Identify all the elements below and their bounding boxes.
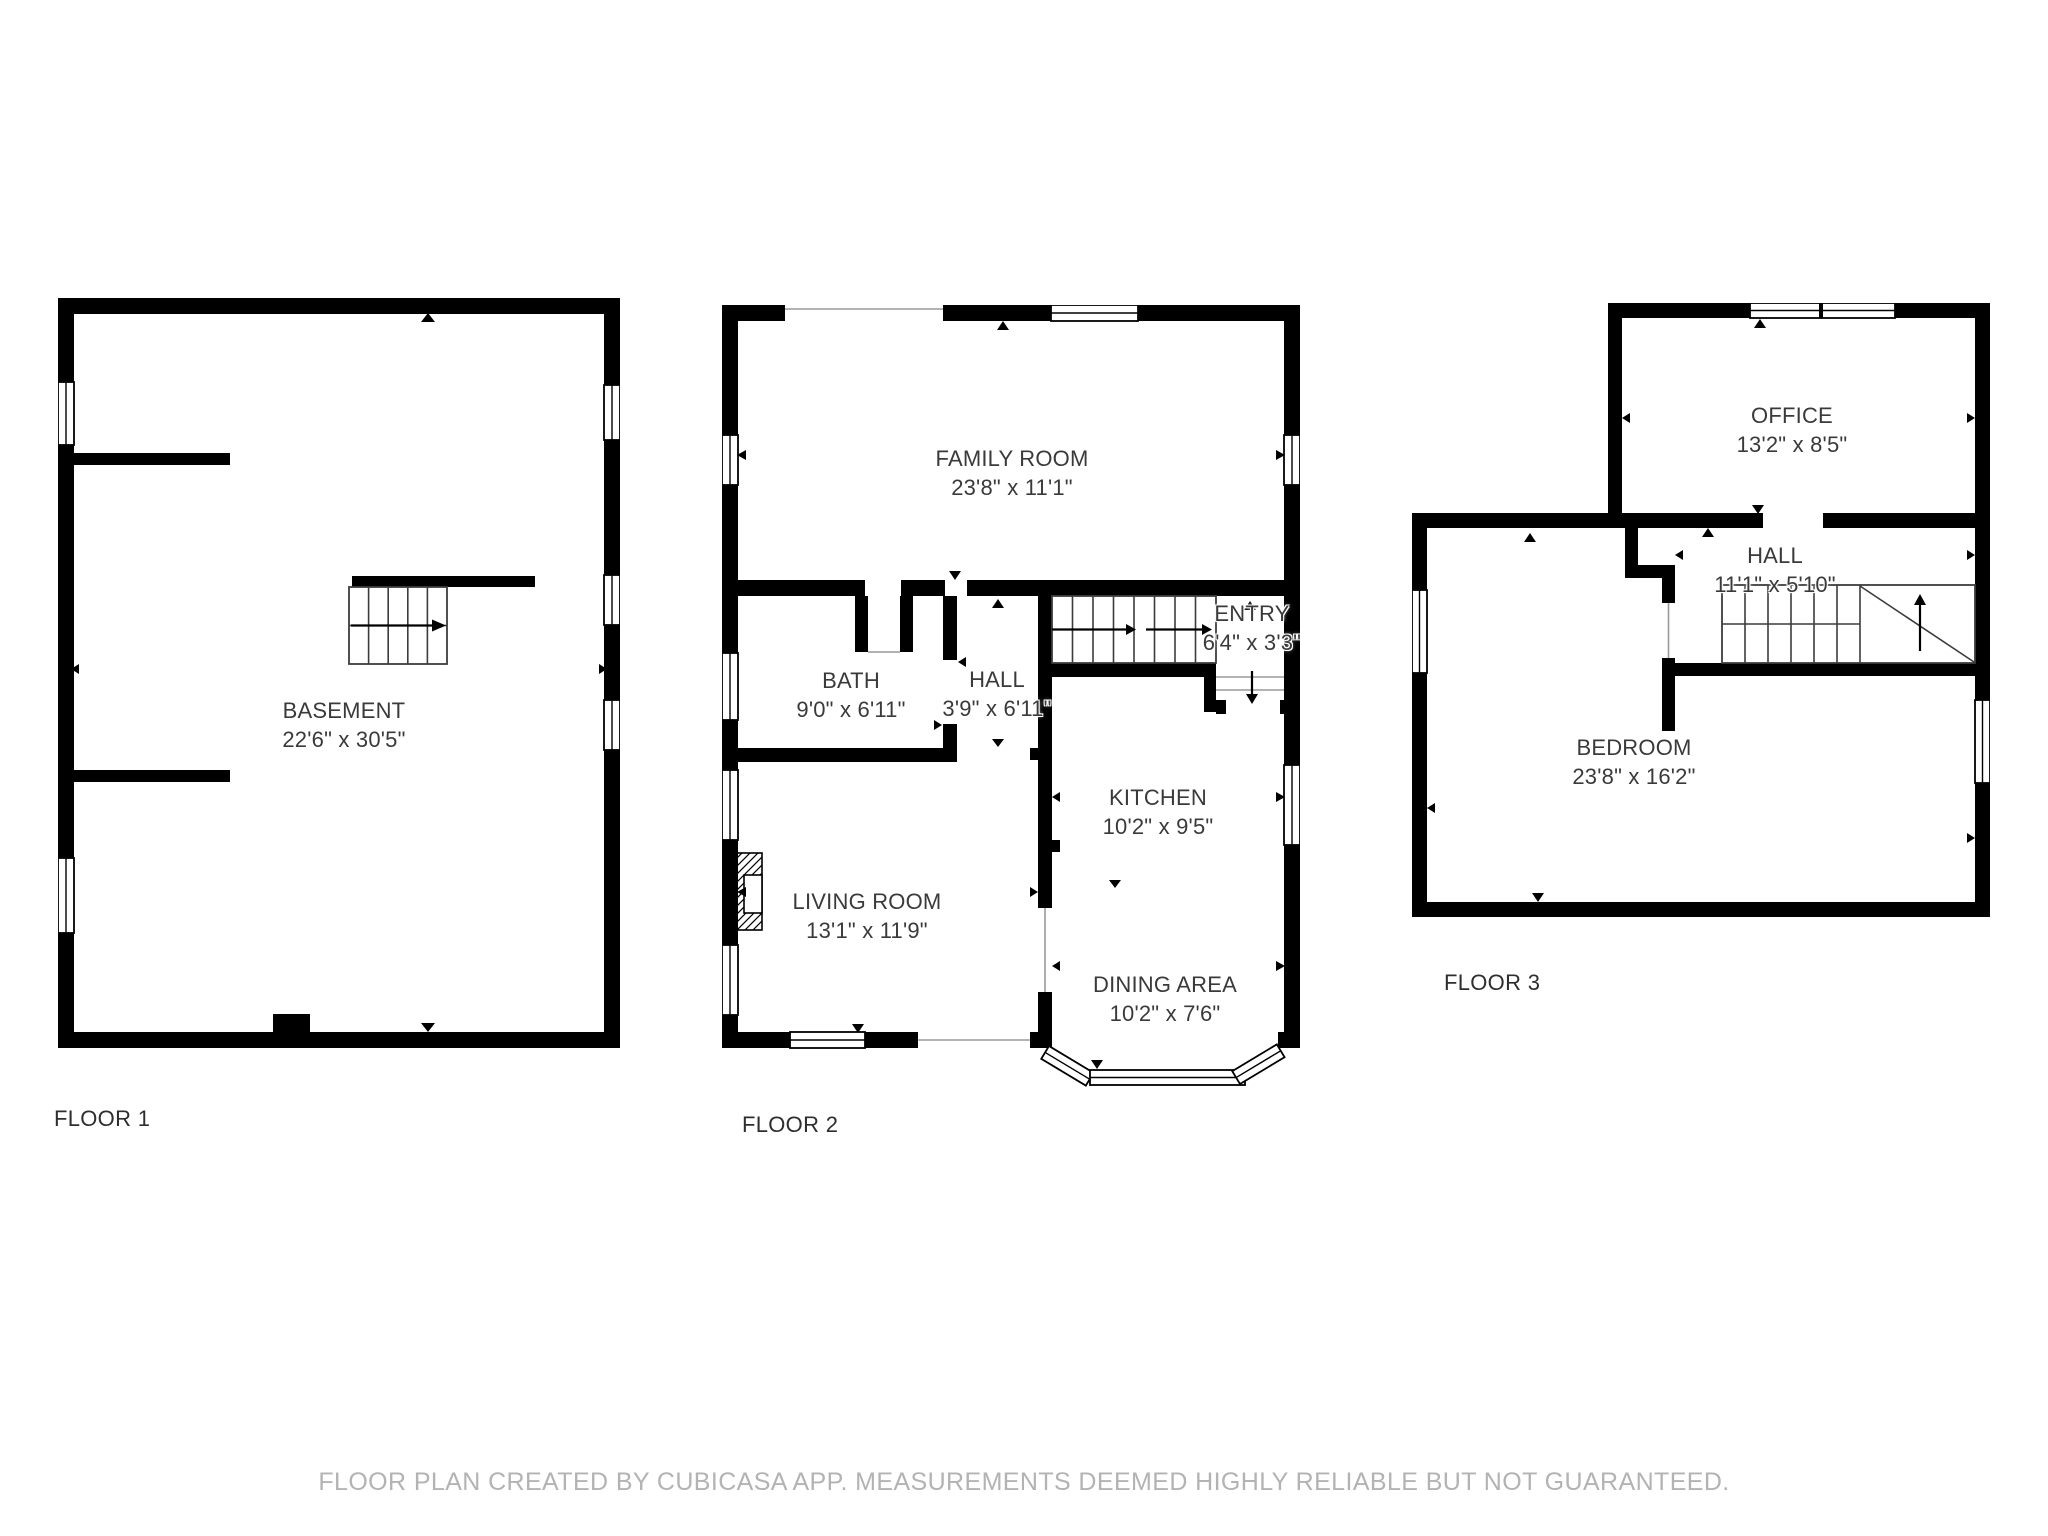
window bbox=[1284, 765, 1300, 845]
window bbox=[790, 1032, 865, 1048]
footer-disclaimer: FLOOR PLAN CREATED BY CUBICASA APP. MEAS… bbox=[318, 1468, 1729, 1497]
room-label-family-room: FAMILY ROOM 23'8" x 11'1" bbox=[936, 444, 1089, 502]
direction-markers bbox=[71, 313, 607, 1032]
room-label-hall-floor3: HALL 11'1" x 5'10" bbox=[1714, 541, 1836, 599]
room-name: HALL bbox=[942, 665, 1051, 694]
staircase bbox=[1052, 596, 1216, 663]
window bbox=[58, 858, 74, 933]
room-name: ENTRY bbox=[1203, 599, 1301, 628]
room-name: HALL bbox=[1714, 541, 1836, 570]
floor1-exterior-walls bbox=[58, 298, 620, 1048]
room-label-hall-floor2: HALL 3'9" x 6'11" bbox=[942, 665, 1051, 723]
room-label-office: OFFICE 13'2" x 8'5" bbox=[1737, 401, 1848, 459]
room-dims: 13'2" x 8'5" bbox=[1737, 430, 1848, 459]
room-name: LIVING ROOM bbox=[793, 887, 942, 916]
window bbox=[1975, 700, 1990, 783]
room-dims: 3'9" x 6'11" bbox=[942, 694, 1051, 723]
window bbox=[604, 575, 620, 625]
window bbox=[1750, 303, 1895, 318]
window bbox=[1412, 590, 1427, 673]
window bbox=[722, 770, 738, 840]
room-dims: 11'1" x 5'10" bbox=[1714, 570, 1836, 599]
window bbox=[58, 382, 74, 445]
room-label-living-room: LIVING ROOM 13'1" x 11'9" bbox=[793, 887, 942, 945]
closet bbox=[855, 596, 913, 652]
room-name: KITCHEN bbox=[1103, 783, 1214, 812]
room-name: FAMILY ROOM bbox=[936, 444, 1089, 473]
floorplan-sheet: BASEMENT 22'6" x 30'5" FAMILY ROOM 23'8"… bbox=[0, 0, 2048, 1536]
room-name: OFFICE bbox=[1737, 401, 1848, 430]
floor3-plan bbox=[1412, 303, 1990, 917]
room-name: BATH bbox=[796, 666, 905, 695]
entry-steps bbox=[1216, 671, 1284, 704]
room-dims: 13'1" x 11'9" bbox=[793, 916, 942, 945]
room-dims: 23'8" x 11'1" bbox=[936, 473, 1089, 502]
floor1-label: FLOOR 1 bbox=[54, 1106, 150, 1132]
room-name: DINING AREA bbox=[1093, 970, 1237, 999]
room-label-bedroom: BEDROOM 23'8" x 16'2" bbox=[1572, 733, 1695, 791]
floor3-label: FLOOR 3 bbox=[1444, 970, 1540, 996]
floor3-windows bbox=[1412, 303, 1990, 783]
room-dims: 22'6" x 30'5" bbox=[282, 725, 405, 754]
window bbox=[1090, 1070, 1245, 1085]
room-name: BEDROOM bbox=[1572, 733, 1695, 762]
room-label-dining-area: DINING AREA 10'2" x 7'6" bbox=[1093, 970, 1237, 1028]
room-dims: 9'0" x 6'11" bbox=[796, 695, 905, 724]
staircase bbox=[349, 587, 447, 664]
room-dims: 10'2" x 7'6" bbox=[1093, 999, 1237, 1028]
floor1-plan bbox=[58, 298, 620, 1048]
room-dims: 10'2" x 9'5" bbox=[1103, 812, 1214, 841]
chimney bbox=[273, 1014, 310, 1032]
room-label-kitchen: KITCHEN 10'2" x 9'5" bbox=[1103, 783, 1214, 841]
bay-window bbox=[1030, 1032, 1300, 1086]
window bbox=[722, 435, 738, 485]
room-name: BASEMENT bbox=[282, 696, 405, 725]
room-label-entry: ENTRY 6'4" x 3'3" bbox=[1203, 599, 1301, 657]
room-label-basement: BASEMENT 22'6" x 30'5" bbox=[282, 696, 405, 754]
window bbox=[1284, 435, 1300, 485]
window bbox=[604, 700, 620, 750]
window bbox=[604, 385, 620, 440]
window bbox=[1051, 305, 1138, 321]
room-dims: 23'8" x 16'2" bbox=[1572, 762, 1695, 791]
room-label-bath: BATH 9'0" x 6'11" bbox=[796, 666, 905, 724]
window bbox=[722, 653, 738, 720]
window bbox=[722, 945, 738, 1015]
floor2-label: FLOOR 2 bbox=[742, 1112, 838, 1138]
room-dims: 6'4" x 3'3" bbox=[1203, 628, 1301, 657]
